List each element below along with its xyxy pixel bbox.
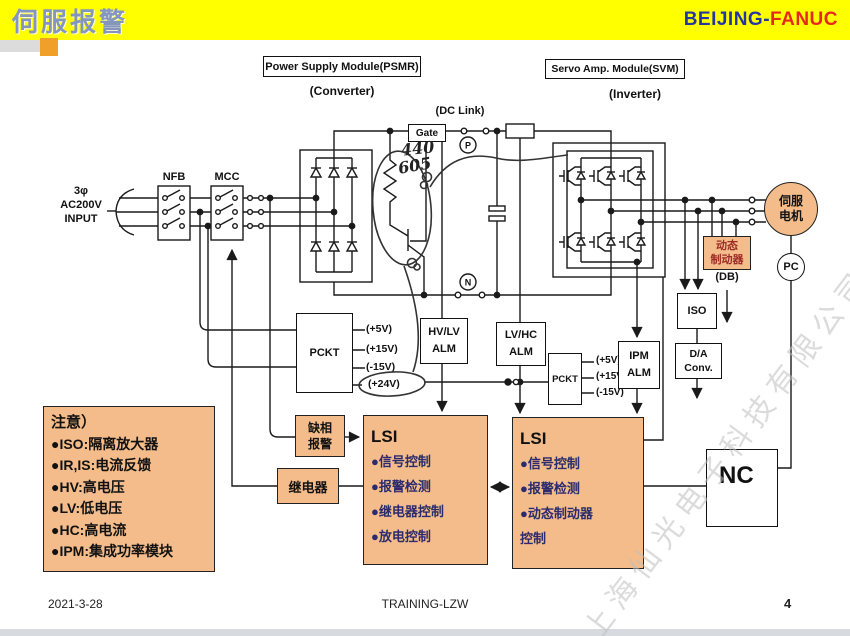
db-label: (DB) xyxy=(705,271,749,283)
pckt1-out-5v: (+5V) xyxy=(366,323,392,335)
lsi-item: ●报警检测 xyxy=(371,474,480,499)
lsi-item: ●报警检测 xyxy=(520,476,636,501)
note-item: ●HC:高电流 xyxy=(51,520,207,542)
nfb-label: NFB xyxy=(152,171,196,183)
phase-loss-line1: 缺相 xyxy=(308,420,332,436)
page-title: 伺服报警 xyxy=(12,2,128,39)
dc-link-label: (DC Link) xyxy=(420,105,500,117)
nc-box: NC xyxy=(706,449,778,527)
accent-strip xyxy=(0,40,40,52)
input-line-3: INPUT xyxy=(48,212,114,226)
brake-line2: 制动器 xyxy=(711,253,744,267)
da-line1: D/A xyxy=(689,347,707,361)
footer-page-number: 4 xyxy=(784,596,791,611)
bottom-strip xyxy=(0,629,850,636)
input-line-2: AC200V xyxy=(48,198,114,212)
slide-page: 伺服报警 BEIJING-FANUC xyxy=(0,0,850,636)
n-terminal: N xyxy=(465,278,472,288)
svm-module-label: Servo Amp. Module(SVM) xyxy=(545,59,685,79)
footer-center: TRAINING-LZW xyxy=(355,597,495,611)
da-conv-box: D/A Conv. xyxy=(675,343,722,379)
motor-line1: 伺服 xyxy=(779,194,803,209)
converter-sublabel: (Converter) xyxy=(278,84,406,98)
hvlv-alarm-box: HV/LV ALM xyxy=(420,318,468,364)
inverter-sublabel: (Inverter) xyxy=(580,87,690,101)
lvhc-line2: ALM xyxy=(509,344,533,361)
pckt1-out-24v: (+24V) xyxy=(368,378,400,390)
iso-box: ISO xyxy=(677,293,717,329)
lsi1-title: LSI xyxy=(371,424,480,449)
brand-fanuc: FANUC xyxy=(770,9,838,30)
note-item: ●HV:高电压 xyxy=(51,477,207,499)
note-title: 注意） xyxy=(51,412,207,434)
lsi-item: ●放电控制 xyxy=(371,524,480,549)
lsi2-box: LSI ●信号控制 ●报警检测 ●动态制动器 控制 xyxy=(512,417,644,569)
pckt1-out-neg15v: (-15V) xyxy=(366,361,395,373)
lsi-item: ●动态制动器 xyxy=(520,501,636,526)
lsi-item: ●继电器控制 xyxy=(371,499,480,524)
psmr-module-label: Power Supply Module(PSMR) xyxy=(263,56,421,77)
brand-beijing: BEIJING- xyxy=(684,9,770,30)
lvhc-line1: LV/HC xyxy=(505,327,537,344)
footer-date: 2021-3-28 xyxy=(48,597,103,611)
ipm-alarm-box: IPM ALM xyxy=(618,341,660,389)
note-item: ●ISO:隔离放大器 xyxy=(51,434,207,456)
accent-square xyxy=(40,38,58,56)
note-item: ●IPM:集成功率模块 xyxy=(51,541,207,563)
dynamic-brake-box: 动态 制动器 xyxy=(703,236,751,270)
lsi-item: 控制 xyxy=(520,526,636,551)
pckt1-box: PCKT xyxy=(296,313,353,393)
lsi-item: ●信号控制 xyxy=(520,451,636,476)
lsi-item: ●信号控制 xyxy=(371,449,480,474)
mcc-label: MCC xyxy=(205,171,249,183)
ipm-line2: ALM xyxy=(627,365,651,382)
note-item: ●IR,IS:电流反馈 xyxy=(51,455,207,477)
brand-logo: BEIJING-FANUC xyxy=(684,9,838,31)
note-box: 注意） ●ISO:隔离放大器 ●IR,IS:电流反馈 ●HV:高电压 ●LV:低… xyxy=(43,406,215,572)
relay-box: 继电器 xyxy=(277,468,339,504)
ipm-line1: IPM xyxy=(629,348,649,365)
hvlv-line1: HV/LV xyxy=(428,324,460,341)
motor-line2: 电机 xyxy=(779,209,803,224)
header-bar: 伺服报警 BEIJING-FANUC xyxy=(0,0,850,40)
lsi1-box: LSI ●信号控制 ●报警检测 ●继电器控制 ●放电控制 xyxy=(363,415,488,565)
da-line2: Conv. xyxy=(684,361,712,375)
lsi2-title: LSI xyxy=(520,426,636,451)
input-line-1: 3φ xyxy=(48,184,114,198)
input-label: 3φ AC200V INPUT xyxy=(48,184,114,226)
servo-motor: 伺服 电机 xyxy=(764,182,818,236)
pckt2-box: PCKT xyxy=(548,353,582,405)
lvhc-alarm-box: LV/HC ALM xyxy=(496,322,546,366)
pckt1-out-15v: (+15V) xyxy=(366,343,398,355)
pc-encoder: PC xyxy=(777,253,805,281)
hvlv-line2: ALM xyxy=(432,341,456,358)
brake-line1: 动态 xyxy=(716,239,738,253)
note-item: ●LV:低电压 xyxy=(51,498,207,520)
phase-loss-line2: 报警 xyxy=(308,436,332,452)
p-terminal: P xyxy=(465,141,471,151)
phase-loss-alarm-box: 缺相 报警 xyxy=(295,415,345,457)
